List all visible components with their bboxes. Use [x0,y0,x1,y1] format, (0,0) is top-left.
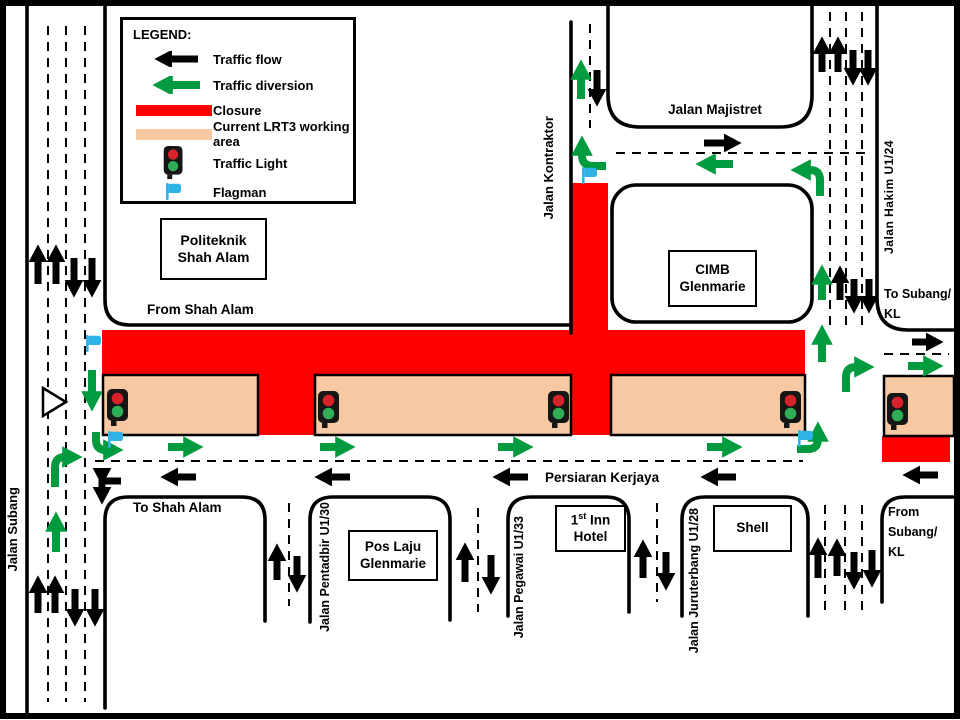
legend-item: Flagman [135,180,353,204]
jalan-pegawai-label: Jalan Pegawai U1/33 [512,516,526,638]
jalan-subang-label: Jalan Subang [5,487,20,572]
jalan-hakim-label: Jalan Hakim U1/24 [882,140,896,254]
shell-label: Shell [736,520,768,537]
traffic-light-icon [107,389,128,426]
legend-item-label: Traffic diversion [213,78,313,93]
cimb-label-line2: Glenmarie [679,279,745,296]
poslaju-label-line2: Glenmarie [360,556,426,573]
cimb-glenmarie-box: CIMB Glenmarie [668,250,757,307]
cimb-label-line1: CIMB [695,262,730,279]
legend-title: LEGEND: [133,27,353,42]
hotel-label-line1: 1st Inn [571,511,611,529]
first-inn-hotel-box: 1st Inn Hotel [555,505,626,552]
flagman-icon [135,183,213,201]
flagman-icon [798,430,813,447]
flagman-icon [86,335,101,352]
legend-item: Traffic diversion [135,72,353,98]
traffic-diversion-arrow [806,170,820,196]
legend-item-label: Traffic flow [213,52,282,67]
politeknik-label-line2: Shah Alam [178,249,250,267]
working-area-2 [315,375,571,435]
traffic-light-icon [135,146,213,180]
to-shah-alam-block-outline [105,497,265,708]
traffic-diversion-map: LEGEND: Traffic flow Traffic diversion C… [0,0,960,720]
shell-box: Shell [713,505,792,552]
traffic-flow-arrow-icon [135,51,213,67]
traffic-light-icon [780,391,801,428]
legend-item: Traffic Light [135,146,353,180]
legend-item-label: Flagman [213,185,266,200]
closure-east-arm [882,436,950,462]
persiaran-kerjaya-label: Persiaran Kerjaya [545,470,659,485]
yield-triangle-icon [43,388,66,416]
jalan-juruterbang-label: Jalan Juruterbang U1/28 [687,508,701,653]
closure-jalan-kontraktor [571,183,608,333]
traffic-diversion-arrow [846,367,859,392]
legend-item-label: Closure [213,103,261,118]
pos-laju-glenmarie-box: Pos Laju Glenmarie [348,530,438,581]
legend-item: Current LRT3 working area [135,122,353,146]
flagman-icon [582,167,597,184]
politeknik-label-line1: Politeknik [180,232,246,250]
politeknik-shah-alam-box: Politeknik Shah Alam [160,218,267,280]
working-area-3 [611,375,805,435]
traffic-light-icon [887,393,908,430]
traffic-light-icon [318,391,339,428]
hotel-label-line2: Hotel [574,529,608,546]
to-subang-kl-label: To Subang/ KL [884,284,951,324]
traffic-diversion-arrow-icon [135,76,213,94]
legend-item-label: Traffic Light [213,156,287,171]
traffic-diversion-arrow [582,151,606,166]
legend-panel: LEGEND: Traffic flow Traffic diversion C… [120,17,356,204]
to-shah-alam-label: To Shah Alam [133,500,222,515]
closure-bar-icon [135,105,213,116]
from-shah-alam-label: From Shah Alam [147,302,254,317]
from-subang-kl-label: From Subang/ KL [888,502,937,562]
poslaju-label-line1: Pos Laju [365,539,421,556]
traffic-light-icon [548,391,569,428]
working-area-bar-icon [135,129,213,140]
legend-item: Traffic flow [135,46,353,72]
jalan-pentadbir-label: Jalan Pentadbir U1/30 [318,502,332,632]
legend-item-label: Current LRT3 working area [213,119,353,149]
jalan-majistret-label: Jalan Majistret [655,102,775,117]
jalan-kontraktor-label: Jalan Kontraktor [541,116,556,219]
flagman-icon [108,431,123,448]
